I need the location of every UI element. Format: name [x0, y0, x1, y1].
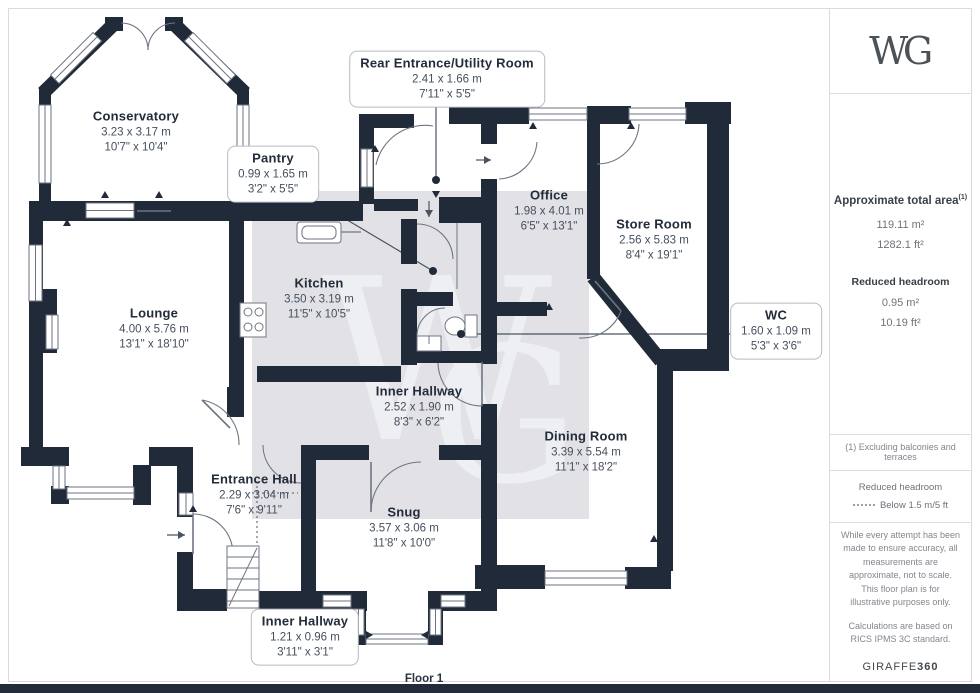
reduced-headroom-metric: 0.95 m² [882, 294, 919, 314]
room-dim-metric: 3.57 x 3.06 m [369, 522, 439, 537]
room-dim-metric: 4.00 x 5.76 m [119, 323, 189, 338]
room-name: WC [741, 308, 811, 325]
standard-text: Calculations are based on RICS IPMS 3C s… [840, 620, 961, 647]
room-name: Rear Entrance/Utility Room [360, 56, 534, 73]
room-dim-metric: 1.98 x 4.01 m [514, 205, 584, 220]
giraffe360-brand: GIRAFFE360 [862, 659, 938, 676]
room-label-store-room: Store Room2.56 x 5.83 m8'4" x 19'1" [616, 217, 692, 264]
room-label-rear-entrance: Rear Entrance/Utility Room2.41 x 1.66 m7… [349, 51, 545, 108]
room-label-pantry: Pantry0.99 x 1.65 m3'2" x 5'5" [227, 146, 319, 203]
hob [240, 303, 266, 337]
legend-heading: Reduced headroom [859, 482, 942, 493]
total-area-heading: Approximate total area(1) [834, 194, 967, 207]
room-dim-metric: 3.50 x 3.19 m [284, 293, 354, 308]
room-label-entrance-hall: Entrance Hall2.29 x 3.04 m7'6" x 9'11" [211, 472, 297, 519]
room-dim-metric: 2.52 x 1.90 m [376, 401, 462, 416]
total-area-section: Approximate total area(1) 119.11 m² 1282… [830, 94, 971, 435]
area-footnote: (1) Excluding balconies and terraces [830, 435, 971, 472]
room-dim-imperial: 6'5" x 13'1" [514, 219, 584, 234]
room-dim-metric: 2.29 x 3.04 m [211, 489, 297, 504]
room-dim-imperial: 5'3" x 3'6" [741, 339, 811, 354]
room-dim-imperial: 11'5" x 10'5" [284, 307, 354, 322]
reduced-headroom-legend: Reduced headroom Below 1.5 m/5 ft [830, 471, 971, 522]
room-label-inner-hallway: Inner Hallway2.52 x 1.90 m8'3" x 6'2" [376, 384, 462, 431]
room-dim-metric: 2.41 x 1.66 m [360, 73, 534, 88]
room-name: Office [514, 188, 584, 205]
toilet-cistern [465, 315, 477, 337]
legend-item: Below 1.5 m/5 ft [853, 500, 948, 511]
room-dim-metric: 1.60 x 1.09 m [741, 325, 811, 340]
room-name: Pantry [238, 151, 308, 168]
room-label-lounge: Lounge4.00 x 5.76 m13'1" x 18'10" [119, 306, 189, 353]
bottom-bar [0, 684, 980, 693]
room-dim-imperial: 3'2" x 5'5" [238, 182, 308, 197]
total-area-metric: 119.11 m² [877, 216, 925, 236]
room-name: Dining Room [544, 429, 627, 446]
room-dim-imperial: 7'6" x 9'11" [211, 503, 297, 518]
room-label-snug: Snug3.57 x 3.06 m11'8" x 10'0" [369, 505, 439, 552]
floor-label: Floor 1 [405, 673, 443, 685]
wg-logo: WG [830, 9, 971, 94]
reduced-headroom-heading: Reduced headroom [851, 276, 949, 288]
room-name: Kitchen [284, 276, 354, 293]
reduced-headroom-imperial: 10.19 ft² [880, 314, 920, 334]
room-dim-imperial: 10'7" x 10'4" [93, 140, 179, 155]
room-name: Lounge [119, 306, 189, 323]
room-dim-imperial: 3'11" x 3'1" [262, 645, 348, 660]
page-frame: WG Conservatory3.23 x 3.17 m10'7" x 10'4… [8, 8, 972, 682]
kitchen-sink [297, 222, 341, 243]
room-name: Inner Hallway [376, 384, 462, 401]
disclaimer-section: While every attempt has been made to ens… [830, 523, 971, 682]
room-label-inner-hallway-2: Inner Hallway1.21 x 0.96 m3'11" x 3'1" [251, 609, 359, 666]
dotted-line-swatch [853, 504, 875, 506]
room-dim-metric: 3.23 x 3.17 m [93, 126, 179, 141]
room-dim-imperial: 13'1" x 18'10" [119, 337, 189, 352]
room-dim-imperial: 11'8" x 10'0" [369, 536, 439, 551]
room-label-wc: WC1.60 x 1.09 m5'3" x 3'6" [730, 303, 822, 360]
room-dim-metric: 0.99 x 1.65 m [238, 168, 308, 183]
room-dim-imperial: 11'1" x 18'2" [544, 460, 627, 475]
room-label-conservatory: Conservatory3.23 x 3.17 m10'7" x 10'4" [93, 109, 179, 156]
total-area-imperial: 1282.1 ft² [877, 236, 923, 256]
room-name: Store Room [616, 217, 692, 234]
disclaimer-text: While every attempt has been made to ens… [840, 529, 961, 610]
room-label-dining-room: Dining Room3.39 x 5.54 m11'1" x 18'2" [544, 429, 627, 476]
room-name: Conservatory [93, 109, 179, 126]
room-label-kitchen: Kitchen3.50 x 3.19 m11'5" x 10'5" [284, 276, 354, 323]
room-dim-metric: 3.39 x 5.54 m [544, 446, 627, 461]
room-dim-metric: 2.56 x 5.83 m [616, 234, 692, 249]
info-sidebar: WG Approximate total area(1) 119.11 m² 1… [829, 9, 971, 681]
room-dim-imperial: 7'11" x 5'5" [360, 87, 534, 102]
room-name: Snug [369, 505, 439, 522]
floorplan-canvas: WG Conservatory3.23 x 3.17 m10'7" x 10'4… [9, 9, 829, 681]
room-dim-imperial: 8'4" x 19'1" [616, 248, 692, 263]
room-label-office: Office1.98 x 4.01 m6'5" x 13'1" [514, 188, 584, 235]
room-dim-imperial: 8'3" x 6'2" [376, 415, 462, 430]
room-name: Inner Hallway [262, 614, 348, 631]
footnote-ref: (1) [959, 194, 968, 201]
room-name: Entrance Hall [211, 472, 297, 489]
room-dim-metric: 1.21 x 0.96 m [262, 631, 348, 646]
floorplan-page: { "plan": { "floor_label": "Floor 1", "w… [0, 0, 980, 693]
